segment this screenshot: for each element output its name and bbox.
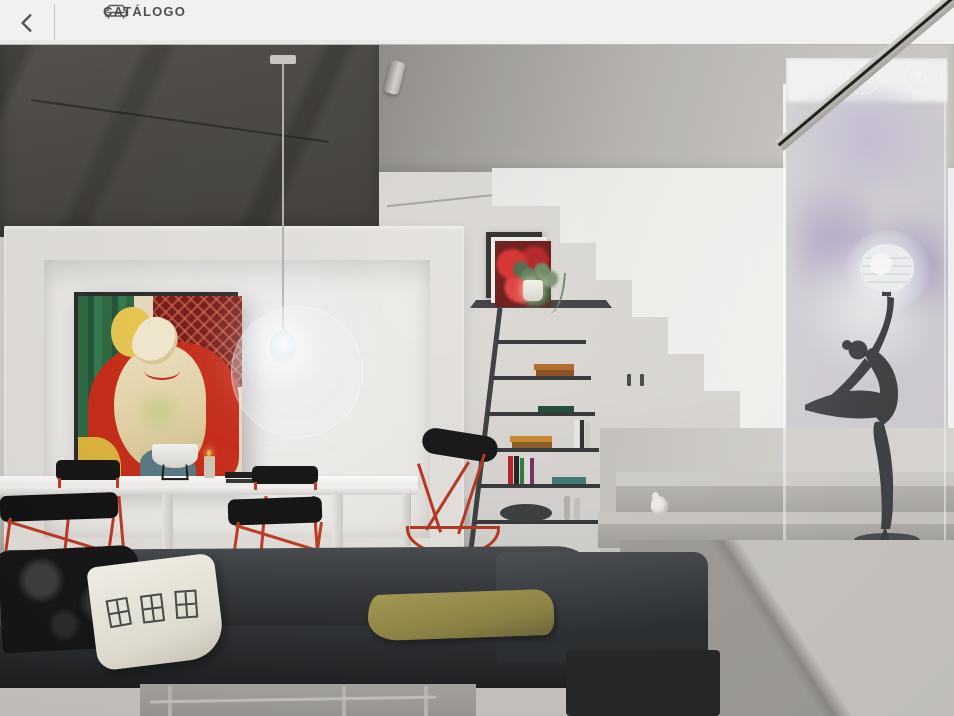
dining-chair-backrest[interactable] (252, 466, 318, 484)
chair-frame (254, 482, 257, 490)
catalog-label: CATÁLOGO (103, 4, 186, 19)
table-leg (332, 494, 343, 554)
concrete-beam (0, 40, 379, 237)
glass-panel-edge (783, 84, 786, 560)
rocker-headrest (420, 426, 499, 464)
squirrel-figurine[interactable] (651, 496, 668, 514)
painting-necklace (144, 361, 180, 380)
dining-chair-backrest[interactable] (56, 460, 120, 480)
book (534, 364, 574, 370)
rocking-chair[interactable] (406, 432, 506, 562)
chair-frame (58, 478, 61, 488)
chair-frame (314, 482, 317, 490)
scene-viewport[interactable] (0, 0, 954, 716)
pendant-cord (282, 56, 284, 336)
toolbar-divider (54, 4, 55, 40)
door-hinge (627, 374, 631, 386)
door-hinge (640, 374, 644, 386)
window-print (140, 593, 165, 623)
house-print-pillow[interactable] (86, 553, 226, 672)
sofa-chaise-seat (566, 650, 720, 716)
sofa-leg (342, 686, 346, 716)
window-print (174, 590, 198, 619)
painting-green-tint (134, 387, 183, 436)
glass-panel-edge (944, 58, 946, 558)
chair-frame (116, 478, 119, 488)
sofa-leg (424, 686, 428, 716)
redo-button[interactable]: ↻ (904, 61, 938, 95)
wire-sphere-pendant-lamp[interactable] (231, 306, 363, 438)
back-chevron-icon (16, 12, 38, 34)
pendant-bulb (270, 330, 296, 364)
olive-cushion[interactable] (367, 589, 554, 641)
app-window: ↺ ↻ CATÁLOGO (0, 0, 954, 716)
window-print (106, 597, 133, 628)
bowl-stand (161, 465, 188, 481)
plant-pot (523, 280, 543, 301)
rocker-bar (410, 526, 498, 529)
back-button[interactable] (0, 0, 54, 45)
glass-panel (786, 58, 946, 560)
pendant-ceiling-mount (270, 55, 296, 64)
rocker-frame (457, 454, 486, 535)
top-toolbar: CATÁLOGO Editar imagem (0, 0, 954, 45)
candle[interactable] (204, 456, 215, 478)
